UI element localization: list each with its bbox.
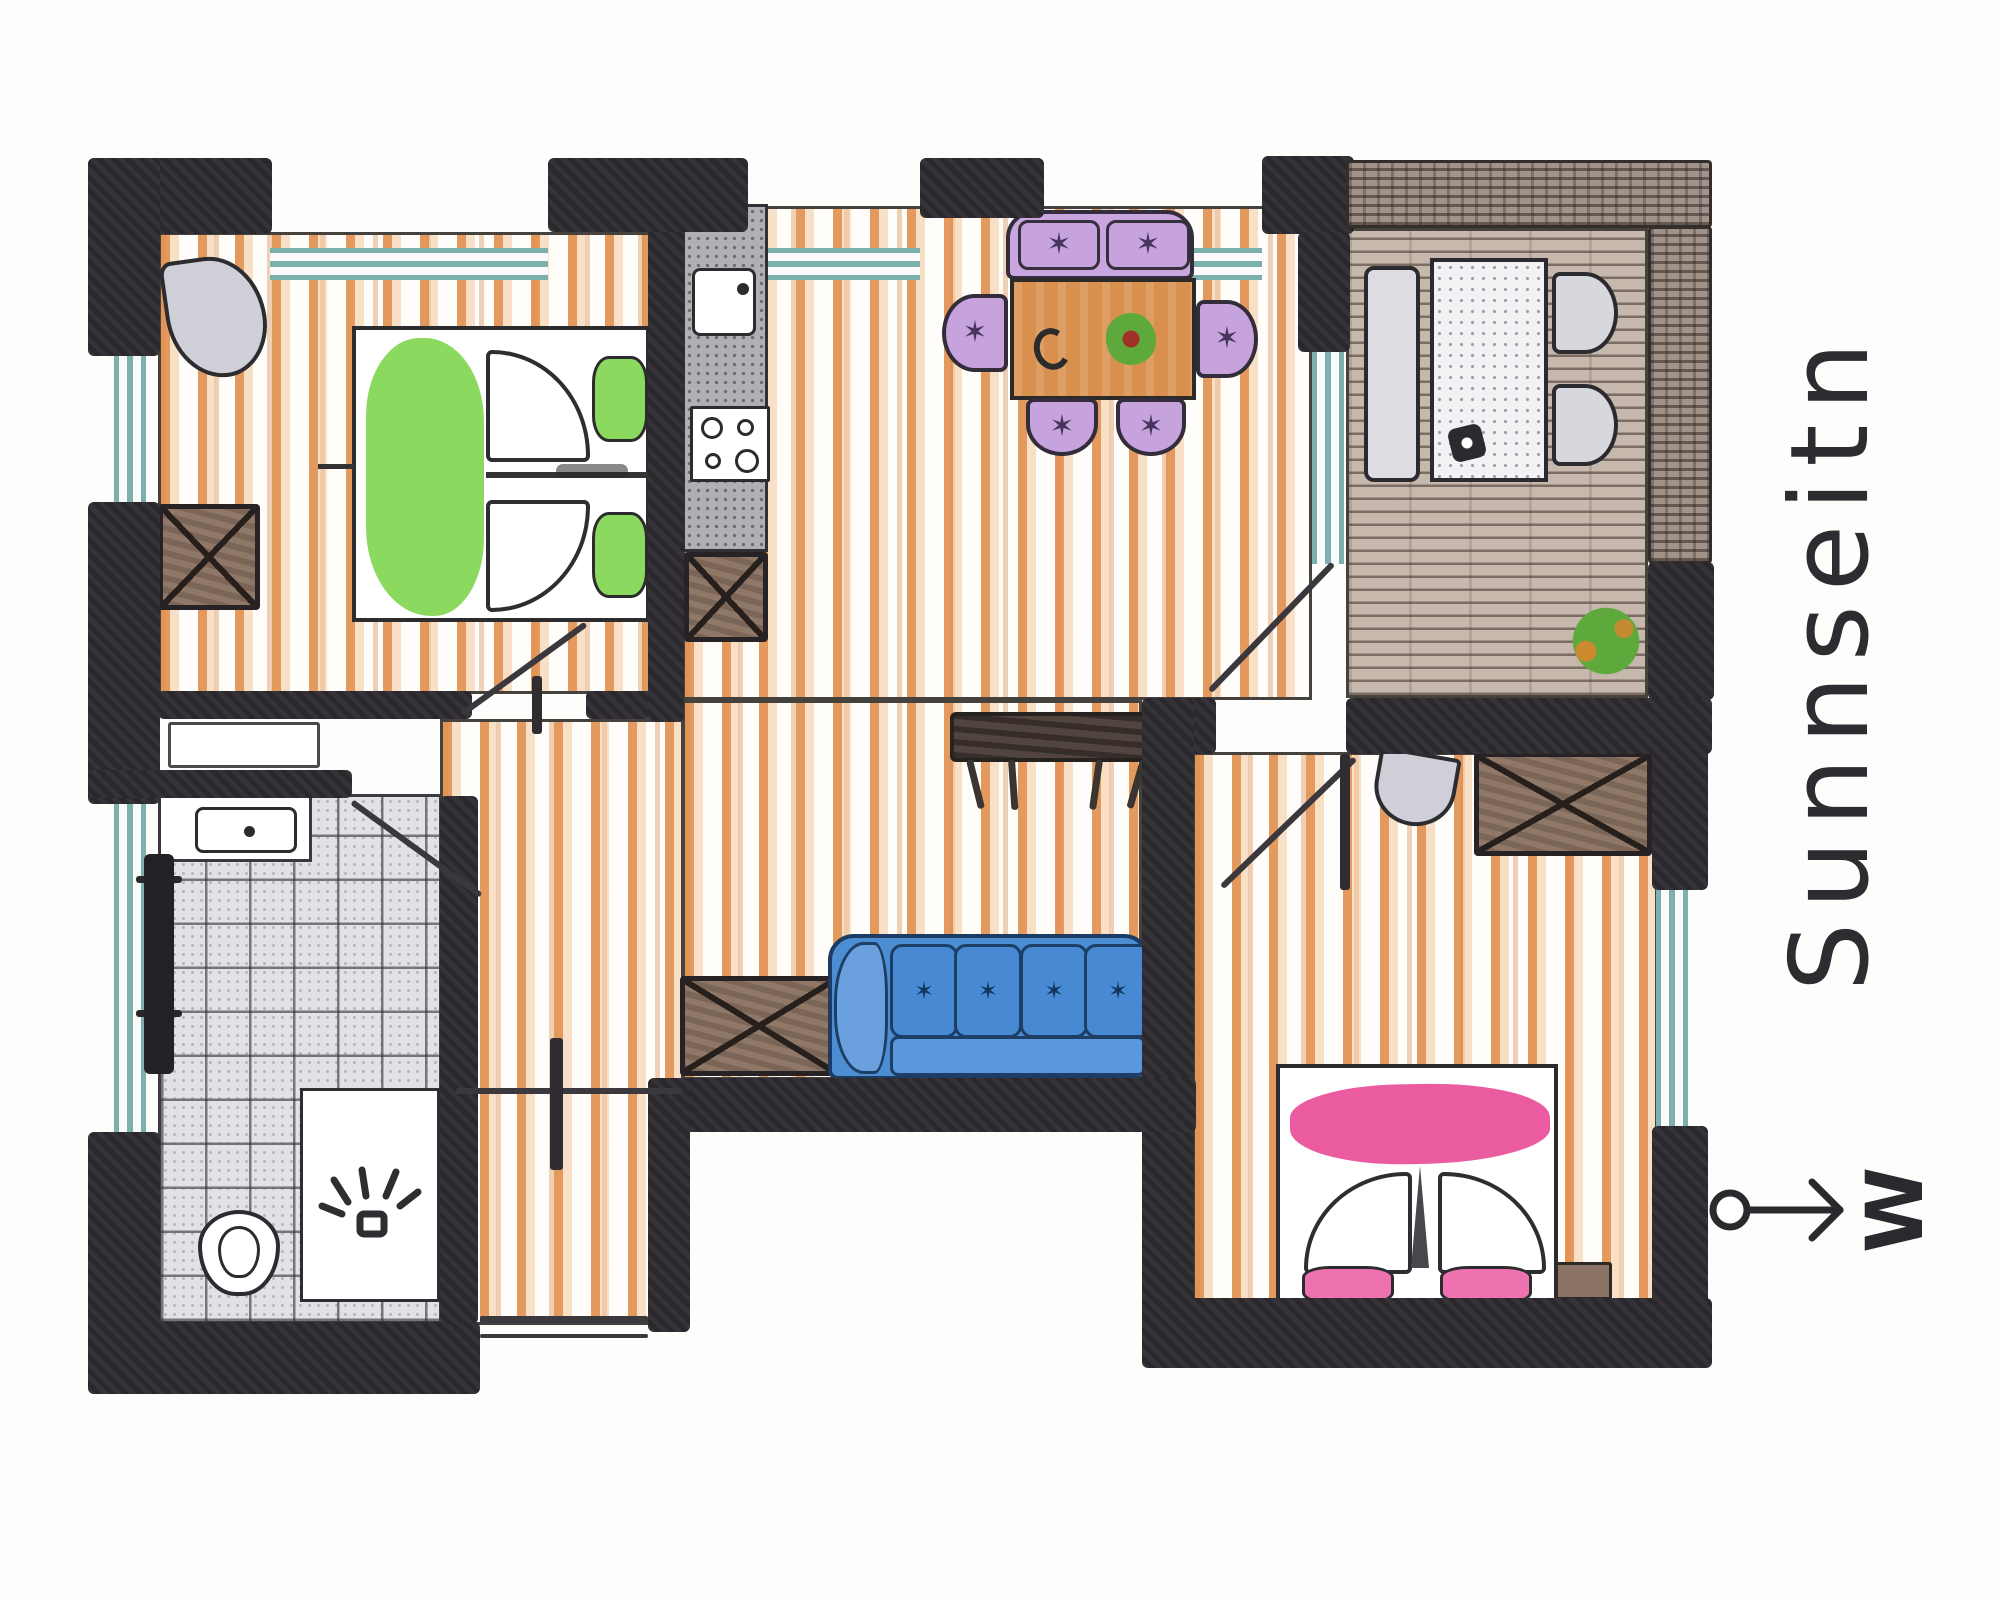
wall-segment [88, 1322, 480, 1394]
window [270, 248, 548, 280]
balcony-railing [1346, 160, 1712, 228]
wall-segment [920, 158, 1044, 218]
tuft-icon: ✶ [914, 979, 934, 1003]
plant-icon [1106, 312, 1156, 366]
bench-cushion: ✶ [1018, 220, 1100, 270]
balcony-table [1430, 258, 1548, 482]
wall-segment [648, 202, 684, 722]
wall-segment [648, 1078, 1196, 1132]
bed-crease-spike [1411, 1166, 1429, 1268]
kitchen-cabinet-box [684, 552, 768, 642]
tuft-icon: ✶ [978, 979, 998, 1003]
balcony-bench [1364, 266, 1420, 482]
shower-spray-icon [316, 1148, 426, 1258]
wall-segment [88, 770, 352, 798]
bed-blanket [366, 338, 484, 616]
burner-icon [737, 419, 754, 436]
bed-pillow [486, 500, 590, 612]
entrance-threshold [480, 1316, 648, 1323]
stove [690, 406, 770, 482]
bed-pillow [1304, 1172, 1412, 1274]
window [114, 352, 146, 504]
wall-segment [88, 158, 160, 356]
kitchen-sink [692, 268, 756, 336]
wall-segment [88, 502, 160, 804]
wall-segment [1262, 156, 1354, 234]
candle-icon [1446, 422, 1487, 463]
tuft-icon: ✶ [1049, 412, 1074, 442]
double-bed-pink [1276, 1064, 1558, 1302]
bench-cushion: ✶ [1106, 220, 1190, 270]
tuft-icon: ✶ [1135, 230, 1160, 260]
wall-segment [648, 1078, 690, 1332]
bed-crease-smudge [556, 464, 628, 478]
burner-icon [701, 417, 723, 439]
kitchen-counter [682, 204, 768, 552]
dining-chair: ✶ [942, 294, 1008, 372]
tuft-icon: ✶ [1138, 412, 1163, 442]
toilet-bowl [218, 1226, 260, 1278]
door-leaf [550, 1038, 563, 1170]
wall-segment [586, 691, 652, 719]
wall-segment [158, 691, 472, 719]
window [748, 248, 920, 280]
tuft-icon: ✶ [1046, 230, 1071, 260]
bed-pillow [486, 350, 590, 462]
compass-letter: W [1851, 1167, 1941, 1253]
sofa-pillow: ✶ [1020, 944, 1088, 1038]
floor-plan: ✶ ✶ ✶ ✶ ✶ ✶ ✶ ✶ ✶ ✶ [0, 0, 2000, 1600]
plant-icon [1556, 590, 1656, 692]
sofa-seat [890, 1036, 1146, 1076]
sofa-pillow: ✶ [890, 944, 958, 1038]
bed-cushion [592, 356, 648, 442]
tuft-icon: ✶ [962, 318, 987, 348]
tuft-icon: ✶ [1214, 324, 1239, 354]
candle-icon [1029, 324, 1075, 374]
wall-segment [1652, 698, 1708, 890]
niche [168, 722, 320, 768]
sofa-arm [834, 942, 888, 1074]
page-title: Sunnseitn [1705, 300, 1955, 1020]
dining-table [1010, 278, 1196, 400]
wall-segment [548, 158, 748, 232]
bed-crease [318, 464, 354, 469]
faucet-icon [737, 283, 749, 295]
window [114, 802, 146, 1134]
vanity-basin [195, 807, 297, 853]
burner-icon [705, 453, 721, 469]
faucet-icon [244, 826, 255, 837]
balcony-railing [1648, 226, 1712, 564]
balcony-chair [1552, 384, 1618, 466]
window [1656, 886, 1688, 1128]
door-leaf [1340, 754, 1350, 890]
double-bed-green [352, 326, 650, 622]
door-leaf [532, 676, 542, 734]
bed-blanket [1289, 1082, 1550, 1167]
title-text: Sunnseitn [1768, 328, 1893, 991]
wardrobe-box [158, 504, 260, 610]
sofa-pillow: ✶ [954, 944, 1022, 1038]
wardrobe-box [1474, 752, 1652, 856]
sofa: ✶ ✶ ✶ ✶ [828, 934, 1150, 1080]
balcony-chair [1552, 272, 1618, 354]
entrance-threshold [480, 1334, 648, 1338]
tuft-icon: ✶ [1108, 979, 1128, 1003]
vanity [158, 794, 312, 862]
threshold-line [456, 1088, 682, 1094]
balcony-glass-door [1312, 348, 1344, 564]
bed-pillow [1438, 1172, 1546, 1274]
wall-segment [1142, 1298, 1712, 1368]
living-room-floor-upper [682, 206, 1312, 700]
wall-segment [1142, 698, 1194, 1312]
sideboard-box [680, 976, 838, 1076]
bed-cushion [592, 512, 648, 598]
radiator [144, 854, 174, 1074]
dining-bench: ✶ ✶ [1006, 210, 1194, 280]
wall-segment [1298, 232, 1350, 352]
compass-west-icon: W [1700, 1120, 1960, 1300]
dining-chair: ✶ [1196, 300, 1258, 378]
tuft-icon: ✶ [1044, 979, 1064, 1003]
burner-icon [735, 449, 759, 473]
